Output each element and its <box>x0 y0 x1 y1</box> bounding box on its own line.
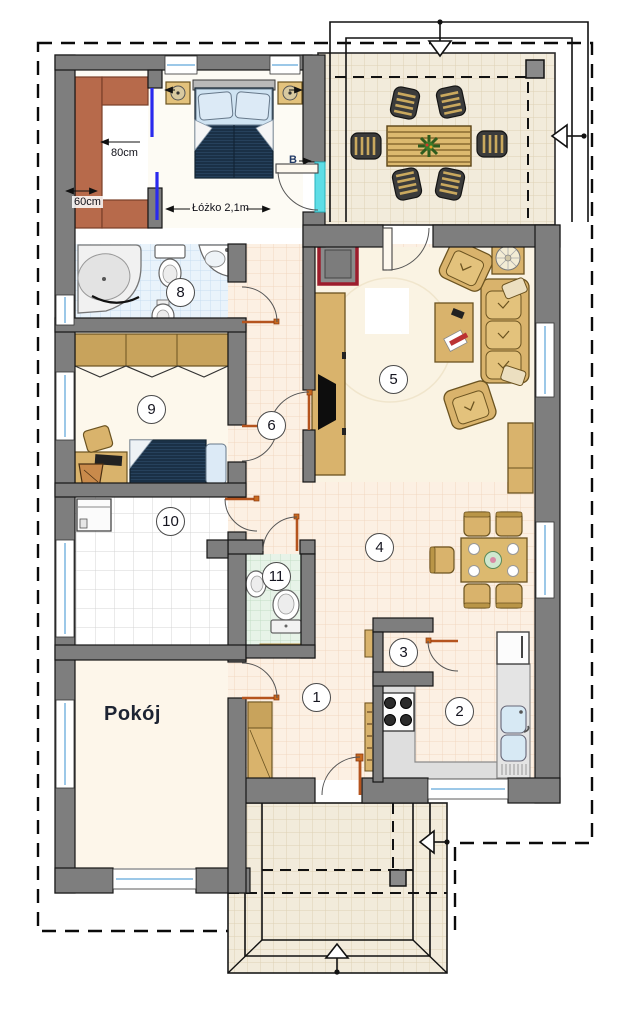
room-number-2-text: 2 <box>455 703 463 720</box>
room-number-6: 6 <box>257 411 286 440</box>
window-left-utility <box>56 540 74 637</box>
window-bottom-pokoj <box>113 869 196 889</box>
entry-porch <box>228 803 450 975</box>
room-number-2: 2 <box>445 697 474 726</box>
room-number-11: 11 <box>262 562 291 591</box>
room-number-3: 3 <box>389 638 418 667</box>
room-number-5: 5 <box>379 365 408 394</box>
room-number-8: 8 <box>166 278 195 307</box>
room-number-10-text: 10 <box>162 513 179 530</box>
floor-plan-drawing <box>0 0 620 1017</box>
room-number-9-text: 9 <box>147 401 155 418</box>
window-right-dining <box>536 522 554 598</box>
room-number-1-text: 1 <box>312 689 320 706</box>
room-number-1: 1 <box>302 683 331 712</box>
section-marker-b: B <box>289 154 297 166</box>
window-left-bedroom9 <box>56 372 74 440</box>
room-number-4: 4 <box>365 533 394 562</box>
room-number-8-text: 8 <box>176 284 184 301</box>
room-name-pokoj: Pokój <box>104 703 161 726</box>
window-left-bathroom <box>56 295 74 325</box>
window-left-pokoj <box>56 700 74 788</box>
dim-closet-width: 60cm <box>72 196 103 208</box>
room-number-11-text: 11 <box>269 568 285 585</box>
window-bottom-kitchen <box>428 779 508 799</box>
utility-room-furniture <box>77 499 111 531</box>
room-number-10: 10 <box>156 507 185 536</box>
room-number-3-text: 3 <box>399 644 407 661</box>
room-number-9: 9 <box>137 395 166 424</box>
room-number-6-text: 6 <box>267 417 275 434</box>
dim-bed-length: Łóżko 2,1m <box>192 202 249 214</box>
window-top-bedroom-1 <box>165 56 197 74</box>
dim-closet-depth: 80cm <box>111 147 138 159</box>
floor-plan-page: 1 2 3 4 5 6 8 9 10 11 Pokój 80cm 60cm Łó… <box>0 0 620 1017</box>
window-right-living <box>536 323 554 397</box>
room-number-5-text: 5 <box>389 371 397 388</box>
window-top-bedroom-2 <box>270 56 300 74</box>
room-number-4-text: 4 <box>375 539 383 556</box>
